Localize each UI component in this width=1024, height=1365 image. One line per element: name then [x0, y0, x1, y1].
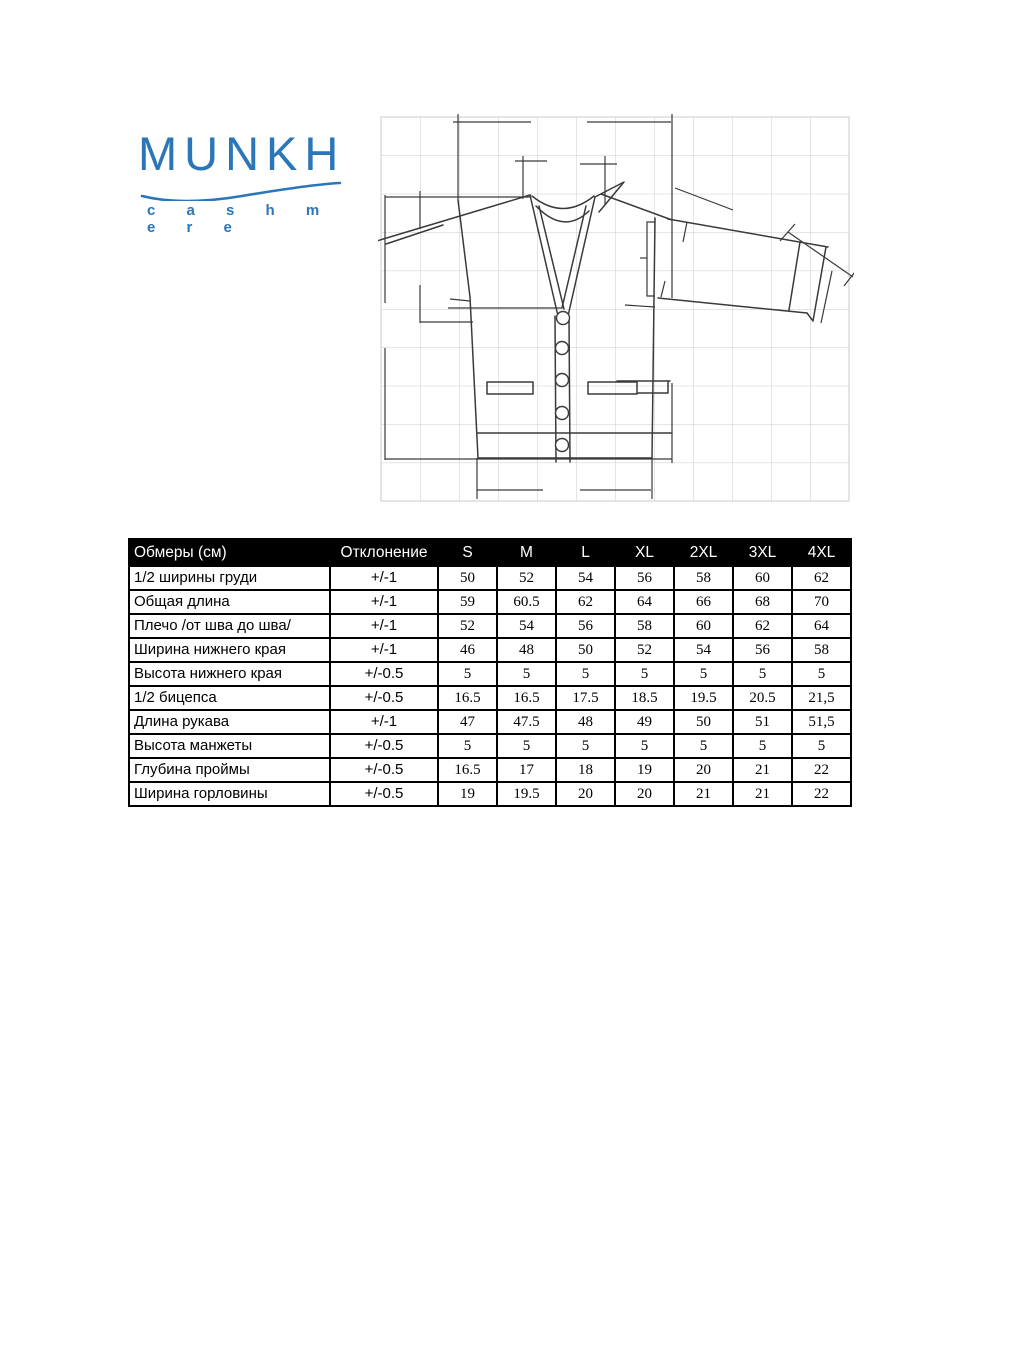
size-value-cell: 68 [733, 590, 792, 614]
size-value-cell: 58 [792, 638, 851, 662]
size-value-cell: 5 [438, 734, 497, 758]
sketch-grid [381, 117, 849, 501]
size-value-cell: 21 [674, 782, 733, 806]
size-column-header: 3XL [733, 539, 792, 566]
size-value-cell: 20 [556, 782, 615, 806]
table-row: Ширина нижнего края+/-146485052545658 [129, 638, 851, 662]
size-value-cell: 58 [615, 614, 674, 638]
size-value-cell: 19.5 [497, 782, 556, 806]
deviation-value: +/-0.5 [330, 782, 438, 806]
size-value-cell: 49 [615, 710, 674, 734]
size-value-cell: 60 [733, 566, 792, 590]
table-row: Общая длина+/-15960.56264666870 [129, 590, 851, 614]
size-value-cell: 46 [438, 638, 497, 662]
size-value-cell: 17 [497, 758, 556, 782]
deviation-value: +/-0.5 [330, 734, 438, 758]
table-row: 1/2 бицепса+/-0.516.516.517.518.519.520.… [129, 686, 851, 710]
size-column-header: S [438, 539, 497, 566]
measurement-label: Ширина нижнего края [129, 638, 330, 662]
size-value-cell: 16.5 [438, 686, 497, 710]
table-header-row: Обмеры (см) Отклонение SMLXL2XL3XL4XL [129, 539, 851, 566]
size-value-cell: 62 [733, 614, 792, 638]
size-value-cell: 58 [674, 566, 733, 590]
brand-tagline: c a s h m e r e [138, 202, 348, 236]
size-value-cell: 5 [497, 662, 556, 686]
size-value-cell: 5 [674, 662, 733, 686]
size-value-cell: 22 [792, 782, 851, 806]
size-value-cell: 19.5 [674, 686, 733, 710]
size-value-cell: 18 [556, 758, 615, 782]
table-row: Высота манжеты+/-0.55555555 [129, 734, 851, 758]
size-value-cell: 5 [615, 662, 674, 686]
size-value-cell: 59 [438, 590, 497, 614]
size-value-cell: 52 [615, 638, 674, 662]
measurement-label: Глубина проймы [129, 758, 330, 782]
size-column-header: XL [615, 539, 674, 566]
deviation-value: +/-0.5 [330, 662, 438, 686]
size-value-cell: 5 [556, 662, 615, 686]
size-value-cell: 5 [438, 662, 497, 686]
deviation-value: +/-1 [330, 566, 438, 590]
size-table-container: Обмеры (см) Отклонение SMLXL2XL3XL4XL 1/… [128, 538, 851, 807]
size-value-cell: 19 [615, 758, 674, 782]
size-value-cell: 50 [674, 710, 733, 734]
size-value-cell: 47 [438, 710, 497, 734]
table-row: Длина рукава+/-14747.54849505151,5 [129, 710, 851, 734]
size-value-cell: 60 [674, 614, 733, 638]
size-value-cell: 70 [792, 590, 851, 614]
size-column-header: L [556, 539, 615, 566]
size-value-cell: 5 [674, 734, 733, 758]
measurement-label: Длина рукава [129, 710, 330, 734]
size-value-cell: 5 [615, 734, 674, 758]
deviation-value: +/-1 [330, 614, 438, 638]
size-value-cell: 19 [438, 782, 497, 806]
size-chart-page: MUNKH c a s h m e r e [0, 0, 1024, 1365]
size-value-cell: 16.5 [438, 758, 497, 782]
size-column-header: 2XL [674, 539, 733, 566]
size-value-cell: 5 [497, 734, 556, 758]
size-value-cell: 21,5 [792, 686, 851, 710]
brand-logo: MUNKH c a s h m e r e [138, 130, 348, 236]
size-value-cell: 48 [497, 638, 556, 662]
size-column-header: M [497, 539, 556, 566]
measurement-label: Плечо /от шва до шва/ [129, 614, 330, 638]
size-value-cell: 18.5 [615, 686, 674, 710]
deviation-value: +/-1 [330, 638, 438, 662]
size-column-header: 4XL [792, 539, 851, 566]
size-value-cell: 50 [438, 566, 497, 590]
size-value-cell: 20 [615, 782, 674, 806]
measurement-label: Ширина горловины [129, 782, 330, 806]
deviation-value: +/-0.5 [330, 758, 438, 782]
size-value-cell: 5 [792, 662, 851, 686]
logo-swoosh-icon [138, 179, 344, 201]
deviation-value: +/-1 [330, 590, 438, 614]
size-value-cell: 56 [733, 638, 792, 662]
size-value-cell: 5 [733, 734, 792, 758]
size-value-cell: 5 [792, 734, 851, 758]
table-row: Плечо /от шва до шва/+/-152545658606264 [129, 614, 851, 638]
size-value-cell: 60.5 [497, 590, 556, 614]
size-value-cell: 66 [674, 590, 733, 614]
size-value-cell: 56 [556, 614, 615, 638]
size-value-cell: 22 [792, 758, 851, 782]
size-value-cell: 48 [556, 710, 615, 734]
size-value-cell: 51,5 [792, 710, 851, 734]
size-value-cell: 47.5 [497, 710, 556, 734]
size-table-body: 1/2 ширины груди+/-150525456586062Общая … [129, 566, 851, 806]
size-value-cell: 20 [674, 758, 733, 782]
size-value-cell: 21 [733, 782, 792, 806]
size-value-cell: 54 [556, 566, 615, 590]
size-value-cell: 5 [733, 662, 792, 686]
table-row: Ширина горловины+/-0.51919.52020212122 [129, 782, 851, 806]
size-value-cell: 54 [497, 614, 556, 638]
measurement-label: Общая длина [129, 590, 330, 614]
size-value-cell: 21 [733, 758, 792, 782]
size-value-cell: 52 [497, 566, 556, 590]
measurements-header: Обмеры (см) [129, 539, 330, 566]
size-value-cell: 52 [438, 614, 497, 638]
brand-name: MUNKH [138, 130, 348, 177]
table-row: 1/2 ширины груди+/-150525456586062 [129, 566, 851, 590]
measurement-label: 1/2 ширины груди [129, 566, 330, 590]
size-value-cell: 62 [792, 566, 851, 590]
cardigan-technical-drawing [378, 113, 854, 507]
size-value-cell: 62 [556, 590, 615, 614]
size-value-cell: 5 [556, 734, 615, 758]
size-value-cell: 51 [733, 710, 792, 734]
deviation-value: +/-0.5 [330, 686, 438, 710]
size-value-cell: 50 [556, 638, 615, 662]
size-table: Обмеры (см) Отклонение SMLXL2XL3XL4XL 1/… [128, 538, 852, 807]
table-row: Глубина проймы+/-0.516.5171819202122 [129, 758, 851, 782]
table-row: Высота нижнего края+/-0.55555555 [129, 662, 851, 686]
deviation-value: +/-1 [330, 710, 438, 734]
deviation-header: Отклонение [330, 539, 438, 566]
measurement-label: Высота нижнего края [129, 662, 330, 686]
size-value-cell: 20.5 [733, 686, 792, 710]
measurement-label: 1/2 бицепса [129, 686, 330, 710]
size-value-cell: 54 [674, 638, 733, 662]
measurement-label: Высота манжеты [129, 734, 330, 758]
size-value-cell: 64 [792, 614, 851, 638]
size-value-cell: 17.5 [556, 686, 615, 710]
size-value-cell: 64 [615, 590, 674, 614]
size-value-cell: 16.5 [497, 686, 556, 710]
size-value-cell: 56 [615, 566, 674, 590]
